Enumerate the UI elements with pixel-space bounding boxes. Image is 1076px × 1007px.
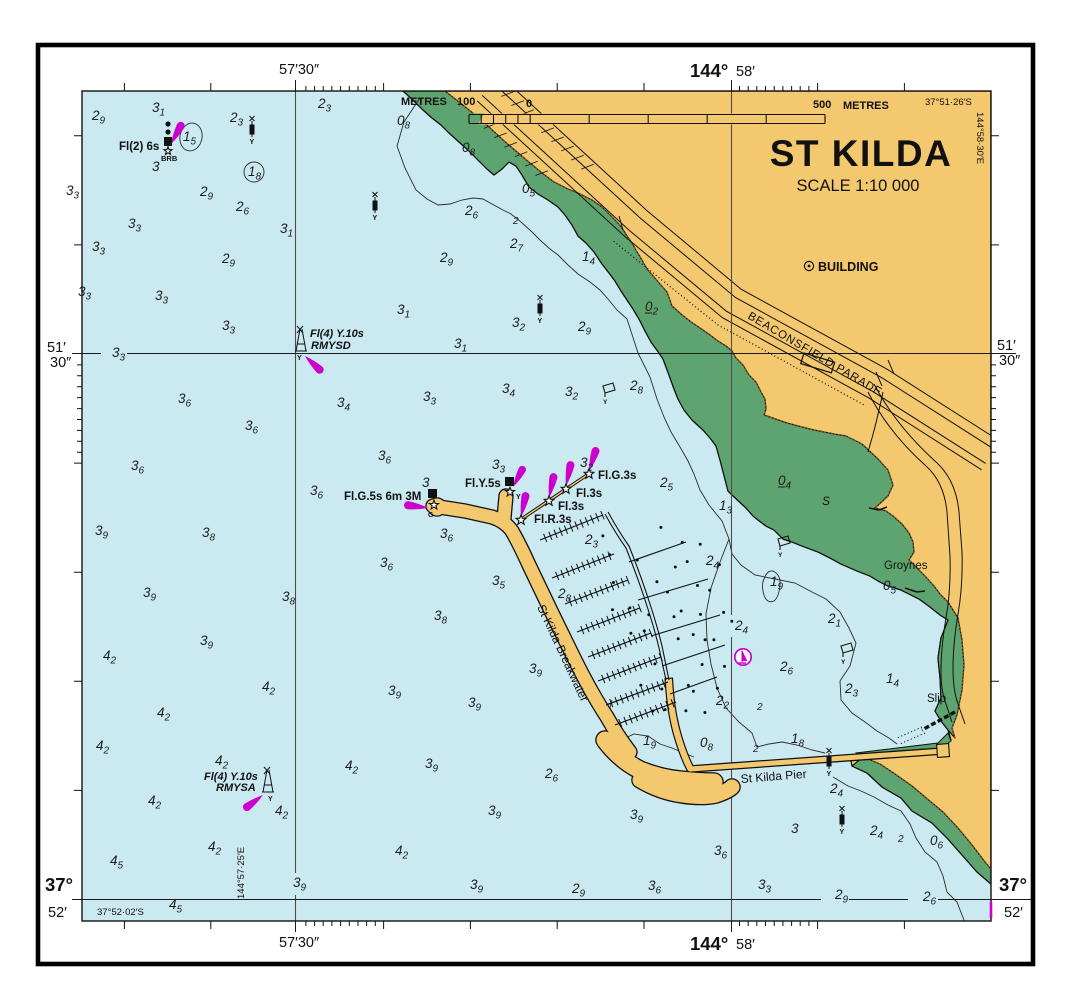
- svg-text:1: 1: [886, 671, 894, 686]
- svg-text:6: 6: [931, 897, 937, 908]
- svg-text:9: 9: [208, 192, 214, 203]
- svg-text:1: 1: [462, 344, 468, 355]
- svg-text:8: 8: [566, 594, 572, 605]
- svg-text:9: 9: [100, 116, 106, 127]
- svg-text:8: 8: [290, 597, 296, 608]
- svg-text:9: 9: [230, 259, 236, 270]
- svg-text:6: 6: [553, 774, 559, 785]
- svg-text:8: 8: [799, 739, 805, 750]
- svg-text:8: 8: [256, 172, 262, 183]
- svg-text:2: 2: [572, 392, 579, 403]
- svg-text:Y: Y: [841, 659, 846, 666]
- svg-text:7: 7: [518, 244, 524, 255]
- svg-text:4: 4: [275, 803, 283, 818]
- svg-text:4: 4: [878, 831, 884, 842]
- svg-text:3: 3: [238, 118, 244, 129]
- svg-text:Y: Y: [373, 215, 378, 222]
- svg-text:4: 4: [110, 853, 118, 868]
- svg-text:2: 2: [110, 656, 117, 667]
- svg-text:3: 3: [74, 191, 80, 202]
- svg-text:3: 3: [500, 465, 506, 476]
- svg-text:5: 5: [177, 905, 183, 916]
- svg-text:Fl.3s: Fl.3s: [576, 488, 602, 500]
- svg-text:6: 6: [656, 886, 662, 897]
- svg-text:2: 2: [512, 216, 519, 227]
- svg-text:4: 4: [510, 389, 516, 400]
- svg-text:Y: Y: [538, 318, 543, 325]
- svg-text:6: 6: [244, 207, 250, 218]
- svg-text:1: 1: [183, 129, 191, 144]
- svg-text:1: 1: [770, 574, 778, 589]
- svg-text:2: 2: [652, 307, 659, 318]
- svg-text:3: 3: [766, 885, 772, 896]
- svg-text:2: 2: [752, 744, 759, 755]
- svg-text:4: 4: [345, 403, 351, 414]
- svg-text:1: 1: [719, 498, 727, 513]
- svg-text:9: 9: [103, 531, 109, 542]
- svg-text:144°: 144°: [690, 933, 728, 954]
- svg-text:8: 8: [405, 121, 411, 132]
- svg-text:51′: 51′: [47, 340, 66, 356]
- svg-text:144°: 144°: [690, 60, 728, 81]
- svg-text:9: 9: [537, 669, 543, 680]
- svg-text:2: 2: [723, 701, 730, 712]
- svg-text:37°: 37°: [45, 874, 73, 895]
- svg-text:9: 9: [208, 641, 214, 652]
- svg-text:Groynes: Groynes: [884, 560, 928, 572]
- svg-text:9: 9: [301, 883, 307, 894]
- svg-text:4: 4: [743, 626, 749, 637]
- svg-text:Slip: Slip: [927, 693, 946, 705]
- svg-text:5: 5: [500, 581, 506, 592]
- svg-text:9: 9: [433, 764, 439, 775]
- svg-text:8: 8: [442, 616, 448, 627]
- svg-text:6: 6: [938, 841, 944, 852]
- svg-text:BRB: BRB: [161, 154, 178, 163]
- svg-text:1: 1: [791, 731, 799, 746]
- svg-text:9: 9: [476, 703, 482, 714]
- svg-text:3: 3: [593, 540, 599, 551]
- svg-text:1: 1: [405, 310, 411, 321]
- svg-text:3: 3: [152, 159, 160, 174]
- svg-text:S: S: [822, 494, 830, 508]
- svg-text:4: 4: [345, 758, 353, 773]
- svg-text:6: 6: [318, 491, 324, 502]
- svg-text:8: 8: [708, 743, 714, 754]
- svg-text:2: 2: [222, 761, 229, 772]
- svg-text:6: 6: [253, 426, 259, 437]
- svg-text:57′30″: 57′30″: [279, 62, 319, 78]
- svg-text:1: 1: [160, 108, 166, 119]
- svg-text:5: 5: [668, 483, 674, 494]
- svg-text:2: 2: [756, 702, 763, 713]
- svg-text:6: 6: [788, 667, 794, 678]
- svg-text:9: 9: [396, 691, 402, 702]
- svg-text:Fl.Y.5s: Fl.Y.5s: [465, 478, 501, 490]
- svg-text:8: 8: [470, 148, 476, 159]
- svg-text:1: 1: [288, 229, 294, 240]
- svg-text:Y: Y: [268, 796, 273, 803]
- svg-text:1: 1: [643, 733, 651, 748]
- svg-text:G: G: [428, 512, 434, 519]
- svg-text:6: 6: [186, 399, 192, 410]
- svg-text:Y: Y: [516, 494, 521, 501]
- svg-text:ST KILDA: ST KILDA: [770, 133, 953, 174]
- svg-text:4: 4: [215, 753, 223, 768]
- svg-text:8: 8: [210, 533, 216, 544]
- svg-text:52′: 52′: [48, 905, 67, 921]
- svg-text:4: 4: [148, 793, 156, 808]
- svg-text:6: 6: [722, 851, 728, 862]
- svg-text:3: 3: [120, 353, 126, 364]
- svg-text:4: 4: [103, 648, 111, 663]
- svg-text:4: 4: [208, 839, 216, 854]
- svg-text:37°52·02′S: 37°52·02′S: [97, 907, 144, 918]
- svg-text:3: 3: [431, 397, 437, 408]
- svg-text:3: 3: [727, 506, 733, 517]
- svg-text:51′: 51′: [997, 338, 1016, 354]
- svg-text:6: 6: [448, 534, 454, 545]
- svg-text:Y: Y: [840, 829, 845, 836]
- svg-text:500: 500: [813, 99, 831, 111]
- svg-text:3: 3: [100, 247, 106, 258]
- svg-text:30″: 30″: [999, 353, 1020, 369]
- svg-text:3: 3: [86, 292, 92, 303]
- svg-text:4: 4: [894, 679, 900, 690]
- svg-text:RMYSD: RMYSD: [311, 340, 351, 352]
- svg-text:9: 9: [651, 741, 657, 752]
- svg-text:6: 6: [139, 466, 145, 477]
- svg-text:2: 2: [402, 851, 409, 862]
- svg-text:5: 5: [191, 137, 197, 148]
- svg-text:3: 3: [853, 689, 859, 700]
- svg-text:Fl(2) 6s: Fl(2) 6s: [119, 141, 159, 153]
- svg-text:4: 4: [714, 561, 720, 572]
- svg-text:3: 3: [136, 224, 142, 235]
- svg-text:4: 4: [395, 843, 403, 858]
- svg-text:BUILDING: BUILDING: [818, 260, 878, 274]
- svg-text:Y: Y: [827, 771, 832, 778]
- svg-text:3: 3: [230, 326, 236, 337]
- svg-text:5: 5: [891, 586, 897, 597]
- svg-text:2: 2: [155, 801, 162, 812]
- svg-text:Fl.G.3s: Fl.G.3s: [598, 470, 636, 482]
- svg-text:3: 3: [791, 821, 799, 836]
- svg-text:0: 0: [526, 98, 532, 110]
- svg-text:2: 2: [282, 811, 289, 822]
- svg-text:144°57·25′E: 144°57·25′E: [236, 847, 247, 899]
- svg-text:58′: 58′: [736, 937, 755, 953]
- svg-text:Y: Y: [297, 355, 302, 362]
- svg-text:58′: 58′: [736, 64, 755, 80]
- svg-text:METRES: METRES: [843, 100, 889, 112]
- svg-text:6: 6: [386, 456, 392, 467]
- svg-text:9: 9: [496, 811, 502, 822]
- svg-text:8: 8: [638, 386, 644, 397]
- svg-text:9: 9: [638, 815, 644, 826]
- svg-text:57′30″: 57′30″: [279, 935, 319, 951]
- svg-text:SCALE 1:10 000: SCALE 1:10 000: [797, 177, 920, 195]
- svg-text:37°51·26′S: 37°51·26′S: [925, 97, 972, 108]
- svg-text:2: 2: [215, 847, 222, 858]
- svg-text:144°58·30′E: 144°58·30′E: [974, 112, 985, 164]
- svg-text:3: 3: [326, 104, 332, 115]
- svg-text:52′: 52′: [1004, 905, 1023, 921]
- svg-text:9: 9: [843, 895, 849, 906]
- svg-text:4: 4: [96, 738, 104, 753]
- svg-text:6: 6: [388, 563, 394, 574]
- svg-text:Fl(4) Y.10s: Fl(4) Y.10s: [310, 328, 364, 340]
- svg-text:Y: Y: [603, 399, 608, 406]
- svg-text:4: 4: [169, 897, 177, 912]
- svg-text:METRES: METRES: [401, 96, 447, 108]
- svg-text:2: 2: [269, 687, 276, 698]
- svg-text:37°: 37°: [999, 874, 1027, 895]
- svg-text:5: 5: [118, 861, 124, 872]
- svg-text:1: 1: [582, 249, 590, 264]
- svg-text:2: 2: [587, 463, 594, 474]
- svg-text:9: 9: [478, 885, 484, 896]
- svg-text:Fl.3s: Fl.3s: [558, 501, 584, 513]
- svg-text:1: 1: [248, 164, 256, 179]
- svg-text:3: 3: [163, 296, 169, 307]
- svg-text:2: 2: [103, 746, 110, 757]
- svg-text:Y: Y: [778, 552, 783, 559]
- svg-text:4: 4: [590, 257, 596, 268]
- svg-text:100: 100: [457, 96, 475, 108]
- svg-text:4: 4: [786, 481, 792, 492]
- svg-text:9: 9: [151, 593, 157, 604]
- svg-text:9: 9: [448, 258, 454, 269]
- svg-text:1: 1: [836, 619, 842, 630]
- svg-text:2: 2: [164, 713, 171, 724]
- svg-text:4: 4: [262, 679, 270, 694]
- svg-text:5: 5: [530, 189, 536, 200]
- svg-text:Fl.R.3s: Fl.R.3s: [534, 514, 572, 526]
- svg-text:6: 6: [473, 211, 479, 222]
- svg-text:4: 4: [157, 705, 165, 720]
- svg-text:2: 2: [519, 323, 526, 334]
- svg-text:9: 9: [580, 889, 586, 900]
- svg-text:2: 2: [897, 834, 904, 845]
- svg-text:3: 3: [422, 475, 430, 490]
- svg-text:2: 2: [352, 766, 359, 777]
- svg-text:RMYSA: RMYSA: [216, 782, 256, 794]
- svg-text:9: 9: [586, 327, 592, 338]
- svg-text:9: 9: [778, 582, 784, 593]
- svg-text:4: 4: [838, 789, 844, 800]
- svg-text:30″: 30″: [50, 355, 71, 371]
- svg-text:Fl.G.5s 6m 3M: Fl.G.5s 6m 3M: [344, 491, 421, 503]
- svg-text:Y: Y: [250, 139, 255, 146]
